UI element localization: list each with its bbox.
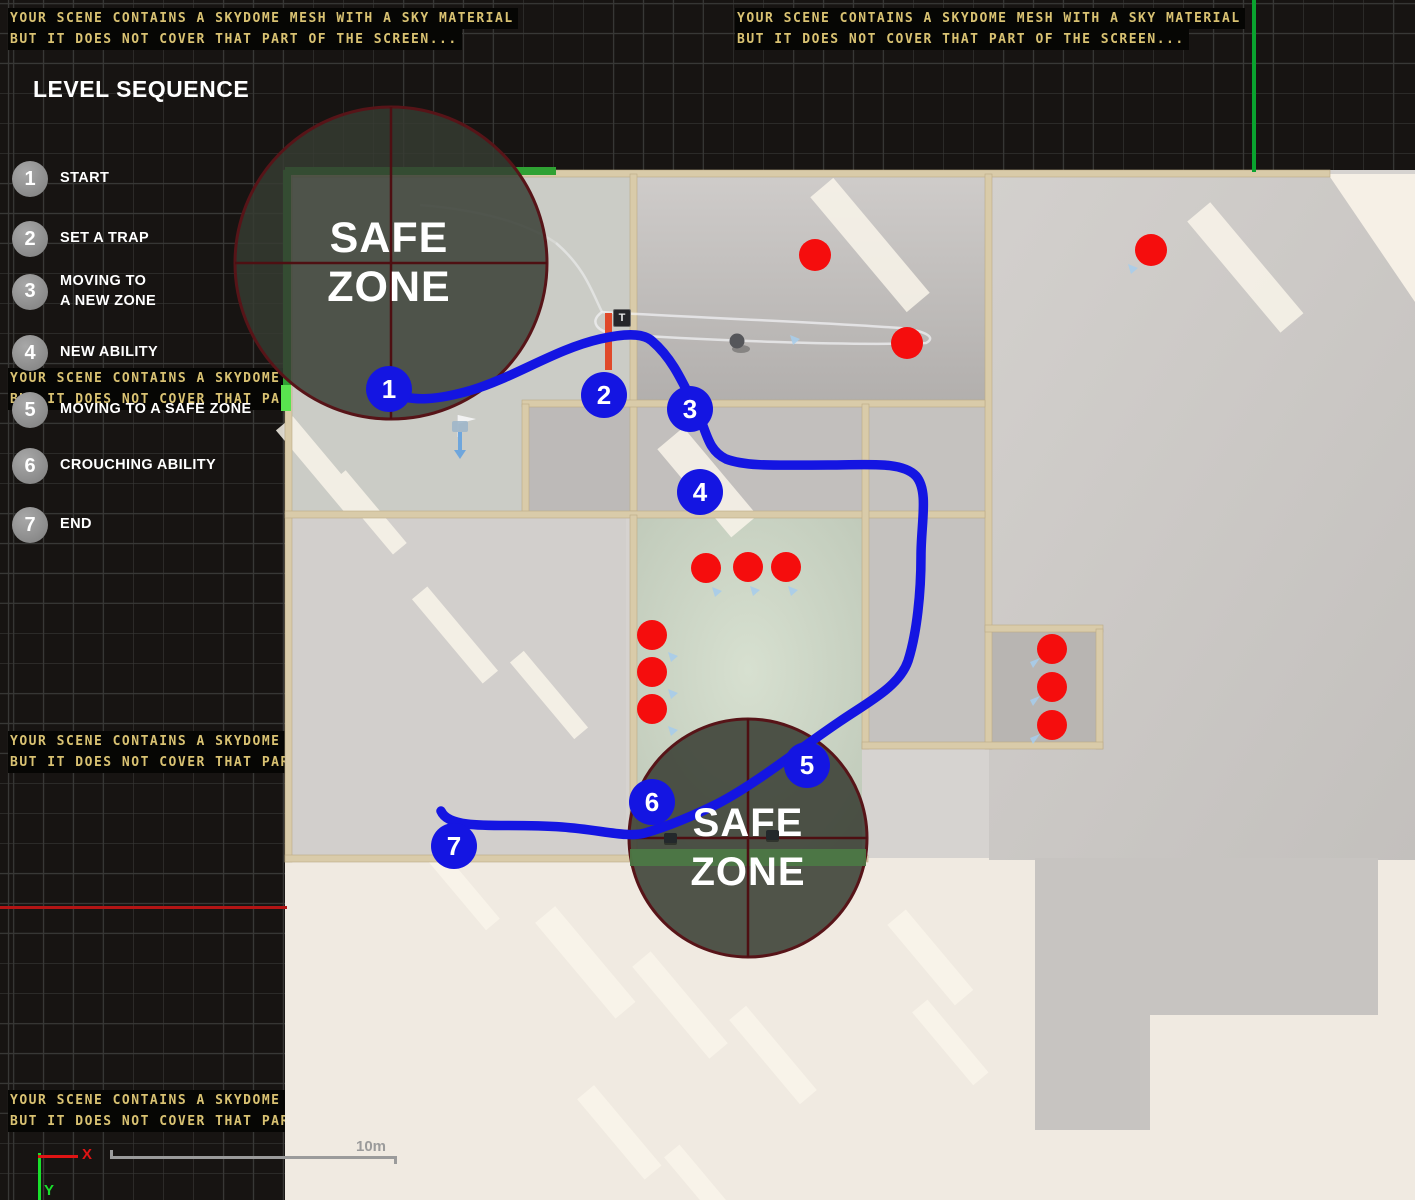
enemy-dot — [1037, 672, 1067, 702]
room-bottom-left — [289, 517, 626, 858]
enemy-dot — [691, 553, 721, 583]
legend-item-set-a-trap: 2 SET A TRAP — [12, 221, 149, 257]
legend-item-crouching: 6 CROUCHING ABILITY — [12, 448, 216, 484]
enemy-dot — [733, 552, 763, 582]
axis-x-line — [38, 1155, 78, 1158]
safe-zone-label-top: SAFE ZONE — [264, 214, 514, 312]
enemy-dot — [771, 552, 801, 582]
legend-number-badge: 6 — [12, 448, 48, 484]
legend-item-new-ability: 4 NEW ABILITY — [12, 335, 158, 371]
level-map — [0, 0, 1415, 1200]
enemy-dot — [637, 620, 667, 650]
route-waypoint-1: 1 — [366, 366, 412, 412]
scale-bar-tick — [394, 1156, 397, 1164]
legend-title: LEVEL SEQUENCE — [33, 76, 249, 103]
prop-icon — [664, 833, 677, 843]
route-waypoint-3: 3 — [667, 386, 713, 432]
enemy-dot — [1037, 634, 1067, 664]
editor-viewport[interactable]: YOUR SCENE CONTAINS A SKYDOME MESH WITH … — [0, 0, 1415, 1200]
legend-number-badge: 5 — [12, 392, 48, 428]
scale-bar-label: 10m — [356, 1138, 386, 1155]
route-waypoint-4: 4 — [677, 469, 723, 515]
legend-number-badge: 3 — [12, 274, 48, 310]
grid-axis-line-green — [1252, 0, 1256, 172]
scale-bar — [110, 1156, 397, 1159]
prop-icon — [766, 830, 779, 840]
legend-item-moving-new-zone: 3 MOVING TOA NEW ZONE — [12, 272, 156, 311]
axis-y-label: Y — [44, 1182, 54, 1199]
route-waypoint-5: 5 — [784, 742, 830, 788]
legend-number-badge: 4 — [12, 335, 48, 371]
legend-item-start: 1 START — [12, 161, 109, 197]
legend-number-badge: 1 — [12, 161, 48, 197]
grid-axis-line-red — [0, 906, 287, 909]
enemy-dot — [1135, 234, 1167, 266]
legend-number-badge: 7 — [12, 507, 48, 543]
axis-x-label: X — [82, 1146, 92, 1163]
trap-icon: T — [613, 309, 631, 327]
legend-item-moving-safe-zone: 5 MOVING TO A SAFE ZONE — [12, 392, 252, 428]
route-waypoint-7: 7 — [431, 823, 477, 869]
scale-bar-tick — [110, 1150, 113, 1158]
route-waypoint-6: 6 — [629, 779, 675, 825]
enemy-dot — [637, 657, 667, 687]
enemy-dot — [1037, 710, 1067, 740]
enemy-dot — [891, 327, 923, 359]
legend-number-badge: 2 — [12, 221, 48, 257]
room-top-middle — [634, 174, 985, 402]
legend-item-end: 7 END — [12, 507, 92, 543]
enemy-dot — [799, 239, 831, 271]
axis-y-line — [38, 1153, 41, 1200]
enemy-dot — [637, 694, 667, 724]
player-marker — [281, 385, 291, 411]
route-waypoint-2: 2 — [581, 372, 627, 418]
